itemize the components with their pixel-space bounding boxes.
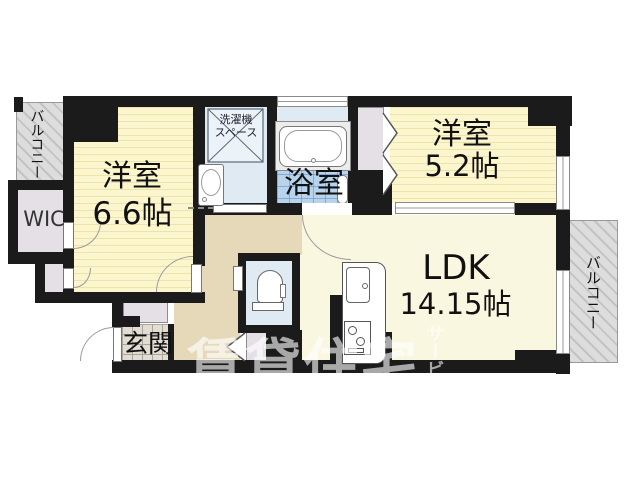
balcony-left-label: バルコニー <box>25 106 47 182</box>
bathtub-drain <box>311 158 316 163</box>
toilet-door-panel <box>233 266 243 291</box>
closet-door-panel <box>63 268 74 289</box>
bedroom-a-floor-upper <box>117 107 193 142</box>
kitchen-faucet <box>362 283 368 289</box>
bedroom-b-size: 5.2帖 <box>422 150 502 182</box>
window-bedroom-b-right <box>556 156 570 210</box>
toilet-flush-panel <box>280 284 286 298</box>
sliding-door-rail <box>188 207 214 209</box>
ldk-door-opening <box>302 203 352 215</box>
stove-burner-1 <box>348 326 357 335</box>
stove-grill <box>348 348 364 353</box>
bath-label: 浴室 <box>277 164 351 204</box>
laundry-label: 洗濯機 スペース <box>208 113 264 143</box>
toilet-tank <box>252 302 284 311</box>
wall-slider-right <box>515 203 558 215</box>
bedroom-a-size: 6.6帖 <box>85 196 180 232</box>
ldk-size: 14.15帖 <box>398 288 513 320</box>
ldk-name: LDK <box>414 250 498 288</box>
washbasin-faucet <box>202 197 207 202</box>
window-ldk-balcony <box>556 270 570 354</box>
entrance-door-arc <box>80 327 114 361</box>
bedroom-b-closet <box>357 107 384 172</box>
bifold-door-bedroom-b-closet <box>382 110 400 198</box>
sliding-door-bedroom-b-ldk <box>395 202 515 214</box>
corridor-passage-floor <box>240 215 302 255</box>
floorplan-canvas: バルコニー バルコニー 洋室 6.6帖 洋室 5.2帖 LDK 14.15帖 浴… <box>0 0 640 480</box>
wall-balcony-left-nub <box>14 97 23 112</box>
window-above-bathtub <box>277 96 348 107</box>
laundry-label-line2: スペース <box>208 126 264 139</box>
laundry-label-line1: 洗濯機 <box>208 113 264 126</box>
entry-hall-floor <box>174 303 205 361</box>
bedroom-b-name: 洋室 <box>430 118 494 152</box>
bedroom-a-name: 洋室 <box>92 160 172 194</box>
wall-hall-closet-right <box>266 330 302 362</box>
washbasin-bowl <box>201 169 221 196</box>
balcony-right-label: バルコニー <box>581 240 603 344</box>
closet-below-wic <box>45 264 63 293</box>
wall-entrance-left <box>112 293 123 327</box>
hall-closet <box>246 331 268 362</box>
stove-burner-2 <box>356 337 365 346</box>
bifold-door-hall-closet <box>223 332 246 362</box>
entrance-label: 玄関 <box>119 329 177 359</box>
wall-bedroom-a-bottom <box>63 292 205 303</box>
wic-label: WIC <box>15 206 73 232</box>
